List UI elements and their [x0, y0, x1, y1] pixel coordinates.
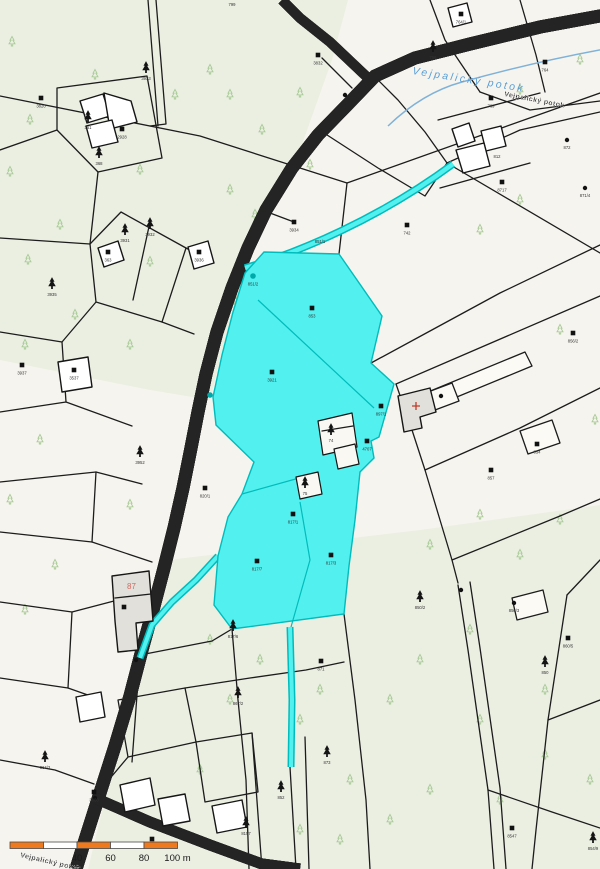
building-symbol-icon — [92, 790, 97, 795]
parcel-number: 756 — [430, 55, 438, 60]
parcel-number: 872 — [564, 145, 572, 150]
building-symbol-icon — [566, 636, 571, 641]
parcel-number: 363 — [105, 258, 113, 263]
parcel-number: 4707 — [362, 447, 372, 452]
scalebar-label: 80 — [139, 853, 150, 864]
building-symbol-icon — [203, 486, 208, 491]
parcel-number: 8717 — [497, 188, 507, 193]
scalebar-segment — [144, 842, 178, 849]
building-symbol-icon — [255, 559, 260, 564]
scalebar-segment — [10, 842, 44, 849]
scalebar-label: 100 m — [164, 853, 190, 864]
parcel-number: 3537 — [69, 376, 79, 381]
parcel-number: 856/2 — [568, 339, 579, 344]
parcel-number: 817/1 — [288, 520, 299, 525]
parcel-number: 8157 — [241, 831, 251, 836]
parcel-number: 742 — [404, 231, 412, 236]
parcel-number: 74 — [329, 438, 334, 443]
selection-vertex-icon — [250, 273, 256, 279]
building-symbol-icon — [405, 223, 410, 228]
scalebar-segment — [44, 842, 78, 849]
boundary-dot-icon — [583, 186, 587, 190]
boundary-dot-icon — [439, 394, 443, 398]
building-symbol-icon — [543, 60, 548, 65]
parcel-number: 853 — [309, 314, 317, 319]
building-symbol-icon — [489, 96, 494, 101]
parcel-number: 3921 — [267, 378, 277, 383]
building-symbol-icon — [500, 180, 505, 185]
parcel-number: 3932 — [145, 232, 155, 237]
building-symbol-icon — [72, 368, 77, 373]
parcel-number: 3860 — [89, 798, 99, 803]
boundary-dot-icon — [134, 658, 138, 662]
parcel-number: 871/4 — [580, 193, 591, 198]
parcel-number: 812 — [494, 154, 502, 159]
parcel-number: 799 — [229, 2, 237, 7]
parcel-number: 75 — [303, 491, 308, 496]
scalebar-segment — [111, 842, 145, 849]
building-symbol-icon — [106, 250, 111, 255]
building-symbol-icon — [459, 12, 464, 17]
building-symbol-icon — [365, 439, 370, 444]
parcel-number: 860/5 — [563, 644, 574, 649]
scalebar-label: 40 — [72, 853, 83, 864]
parcel-number: 764/1 — [456, 20, 467, 25]
parcel-number: 2928 — [117, 135, 127, 140]
parcel-number: 817/7 — [252, 567, 263, 572]
parcel-number: 3820 — [36, 104, 46, 109]
boundary-dot-icon — [565, 138, 569, 142]
parcel-number: 368 — [96, 161, 104, 166]
building-symbol-icon — [122, 605, 127, 610]
building-symbol-icon — [310, 306, 315, 311]
parcel-number: 3952 — [135, 460, 145, 465]
parcel-number: 851/1 — [315, 239, 326, 244]
parcel-number: 3935 — [47, 292, 57, 297]
house-number-label: 87 — [127, 582, 136, 591]
scalebar-label: 60 — [105, 853, 116, 864]
building-symbol-icon — [571, 331, 576, 336]
parcel-number: 854/9 — [588, 846, 599, 851]
building-symbol-icon — [329, 553, 334, 558]
parcel-number: 820/1 — [200, 494, 211, 499]
parcel-number: 851/2 — [248, 282, 259, 287]
parcel-number: 850 — [542, 670, 550, 675]
building-symbol-icon — [292, 220, 297, 225]
parcel-number: 850/3 — [509, 608, 520, 613]
parcel-number: 3933 — [141, 76, 151, 81]
parcel-number: 857 — [488, 476, 496, 481]
map-viewport[interactable]: 382029283832393436339373537820/185339218… — [0, 0, 600, 869]
parcel-number: 361 — [85, 125, 93, 130]
building-symbol-icon — [535, 442, 540, 447]
parcel-number: 817/3 — [326, 561, 337, 566]
parcel-number: 764 — [542, 68, 550, 73]
parcel-number: 769 — [488, 104, 496, 109]
boundary-dot-icon — [459, 588, 463, 592]
building-symbol-icon — [291, 512, 296, 517]
parcel-number: 850/2 — [415, 605, 426, 610]
selection-vertex-icon — [207, 392, 213, 398]
building-symbol-icon — [270, 370, 275, 375]
parcel-number: 3934 — [289, 228, 299, 233]
parcel-number: 897/1 — [376, 412, 387, 417]
boundary-dot-icon — [343, 93, 347, 97]
building-symbol-icon — [319, 659, 324, 664]
parcel-number: 852 — [278, 795, 286, 800]
parcel-number: 873 — [324, 760, 332, 765]
cadastral-map-svg[interactable]: 382029283832393436339373537820/185339218… — [0, 0, 600, 869]
parcel-number: 3832 — [313, 61, 323, 66]
parcel-number: 817/6 — [228, 634, 239, 639]
building-symbol-icon — [379, 404, 384, 409]
parcel-number: 864/3 — [40, 765, 51, 770]
building-symbol-icon — [316, 53, 321, 58]
building-symbol-icon — [489, 468, 494, 473]
parcel-number: 867/2 — [233, 701, 244, 706]
parcel-number: 8547 — [507, 834, 517, 839]
parcel-number: 3931 — [120, 238, 130, 243]
parcel-number: 871 — [318, 667, 326, 672]
parcel-number: 854 — [534, 450, 542, 455]
building-symbol-icon — [120, 127, 125, 132]
building-symbol-icon — [510, 826, 515, 831]
building-symbol-icon — [150, 837, 155, 842]
building-symbol-icon — [197, 250, 202, 255]
boundary-dot-icon — [512, 601, 516, 605]
scalebar-segment — [77, 842, 111, 849]
parcel-number: 3936 — [194, 258, 204, 263]
building-symbol-icon — [39, 96, 44, 101]
parcel-number: 3937 — [17, 371, 27, 376]
building-symbol-icon — [20, 363, 25, 368]
